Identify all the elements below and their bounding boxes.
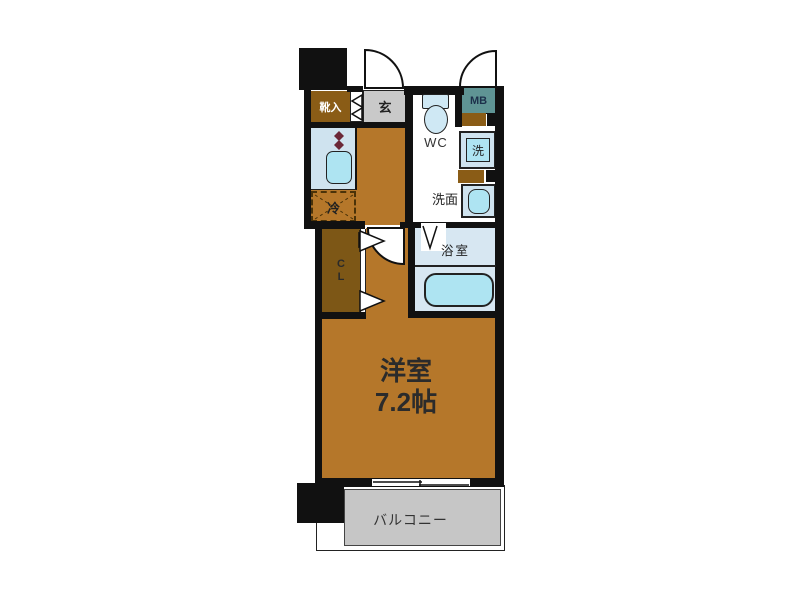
meter-box-door-arc (460, 51, 496, 87)
shoe-door-chevron-bottom-icon (352, 108, 362, 120)
stove-burner-1-icon (334, 131, 344, 141)
closet-door-bottom-icon (360, 291, 384, 311)
stove-burner-2-icon (334, 140, 344, 150)
floorplan-canvas: 洋室 7.2帖 玄 靴入 WC MB 洗 洗面 浴室 冷 C L バルコニー (0, 0, 800, 600)
entrance-door-arc (365, 50, 403, 88)
door-and-symbol-overlay (0, 0, 800, 600)
shoe-door-chevron-top-icon (352, 95, 362, 107)
